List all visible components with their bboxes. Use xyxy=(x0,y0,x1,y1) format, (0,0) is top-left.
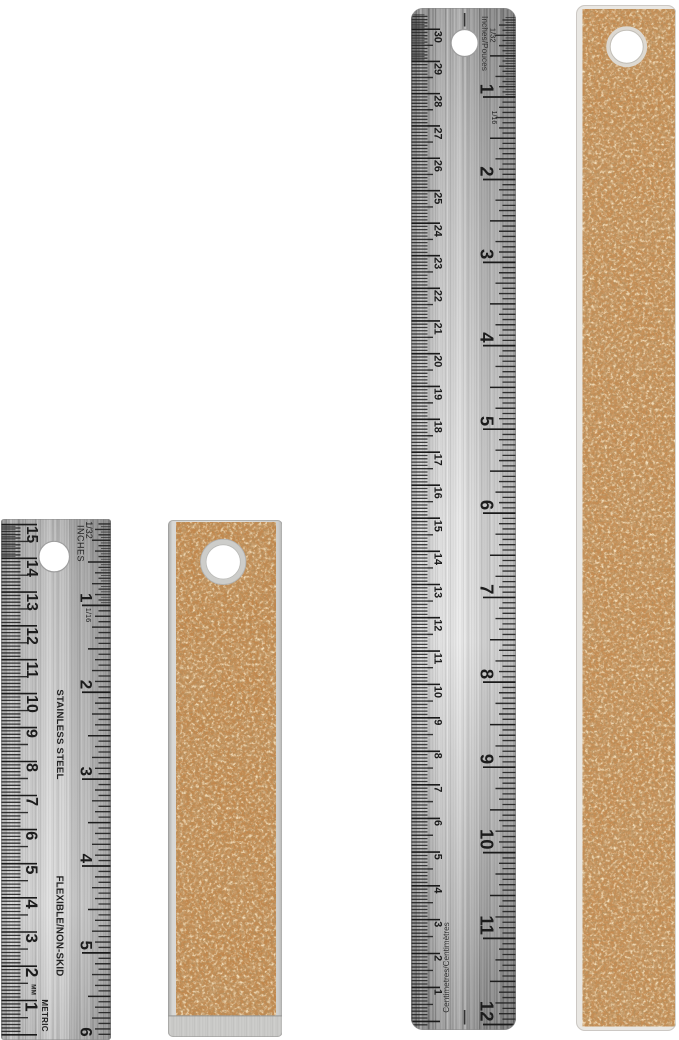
svg-text:FLEXIBLE/NON-SKID: FLEXIBLE/NON-SKID xyxy=(53,876,64,977)
svg-text:17: 17 xyxy=(432,454,444,466)
svg-text:10: 10 xyxy=(477,829,498,850)
svg-text:11: 11 xyxy=(477,915,498,935)
svg-text:28: 28 xyxy=(432,95,444,107)
svg-text:23: 23 xyxy=(432,257,444,269)
svg-text:11: 11 xyxy=(23,662,40,679)
svg-text:9: 9 xyxy=(432,719,444,725)
svg-text:15: 15 xyxy=(23,526,40,544)
svg-text:1: 1 xyxy=(21,1002,41,1012)
svg-text:12: 12 xyxy=(23,627,40,645)
svg-text:10: 10 xyxy=(23,695,40,713)
svg-text:3: 3 xyxy=(22,933,41,942)
svg-text:6: 6 xyxy=(432,820,444,826)
svg-text:6: 6 xyxy=(77,1027,96,1036)
svg-text:2: 2 xyxy=(477,166,498,176)
svg-text:7: 7 xyxy=(432,786,444,792)
svg-text:29: 29 xyxy=(432,63,444,75)
svg-text:12: 12 xyxy=(477,1001,498,1022)
svg-text:Inches/Pouces: Inches/Pouces xyxy=(480,16,490,71)
svg-text:METRIC: METRIC xyxy=(40,999,49,1031)
svg-text:4: 4 xyxy=(432,887,444,893)
svg-text:1/16: 1/16 xyxy=(84,608,93,623)
svg-text:5: 5 xyxy=(77,940,96,949)
svg-text:Centimetres/Centimètres: Centimetres/Centimètres xyxy=(442,922,451,1013)
svg-text:11: 11 xyxy=(432,653,444,664)
svg-text:8: 8 xyxy=(22,763,40,772)
svg-text:13: 13 xyxy=(432,586,444,598)
svg-text:14: 14 xyxy=(432,553,444,565)
svg-text:14: 14 xyxy=(23,560,40,578)
svg-text:25: 25 xyxy=(432,192,444,204)
svg-text:21: 21 xyxy=(432,323,444,335)
svg-text:9: 9 xyxy=(477,754,498,764)
svg-text:MM: MM xyxy=(30,984,37,995)
svg-text:26: 26 xyxy=(432,160,444,172)
svg-text:STAINLESS STEEL: STAINLESS STEEL xyxy=(54,689,65,779)
svg-text:18: 18 xyxy=(432,421,444,433)
svg-text:5: 5 xyxy=(477,416,498,426)
svg-text:3: 3 xyxy=(77,767,96,776)
svg-text:7: 7 xyxy=(477,584,498,594)
svg-text:1/16: 1/16 xyxy=(490,111,497,125)
svg-text:2: 2 xyxy=(77,680,96,689)
svg-text:1: 1 xyxy=(77,593,96,602)
svg-text:5: 5 xyxy=(22,865,41,874)
svg-text:4: 4 xyxy=(77,854,96,864)
svg-text:6: 6 xyxy=(477,500,498,510)
svg-text:6: 6 xyxy=(22,831,41,840)
svg-text:20: 20 xyxy=(432,355,444,367)
svg-text:15: 15 xyxy=(432,520,444,532)
svg-text:7: 7 xyxy=(22,797,40,806)
svg-text:4: 4 xyxy=(22,899,41,909)
svg-text:INCHES: INCHES xyxy=(76,525,86,562)
svg-text:22: 22 xyxy=(432,290,444,302)
svg-text:3: 3 xyxy=(477,249,498,259)
svg-text:4: 4 xyxy=(477,332,498,343)
svg-text:30: 30 xyxy=(432,31,444,43)
svg-text:5: 5 xyxy=(432,854,444,860)
svg-text:9: 9 xyxy=(22,729,40,738)
svg-text:16: 16 xyxy=(432,487,444,499)
svg-text:13: 13 xyxy=(23,594,40,612)
svg-text:19: 19 xyxy=(432,388,444,400)
svg-text:12: 12 xyxy=(432,619,444,631)
svg-text:8: 8 xyxy=(477,669,498,679)
svg-text:1: 1 xyxy=(477,84,498,94)
svg-text:2: 2 xyxy=(22,968,41,978)
svg-text:24: 24 xyxy=(432,225,444,237)
svg-text:8: 8 xyxy=(432,753,444,759)
svg-text:27: 27 xyxy=(432,127,444,139)
svg-text:10: 10 xyxy=(432,686,444,698)
